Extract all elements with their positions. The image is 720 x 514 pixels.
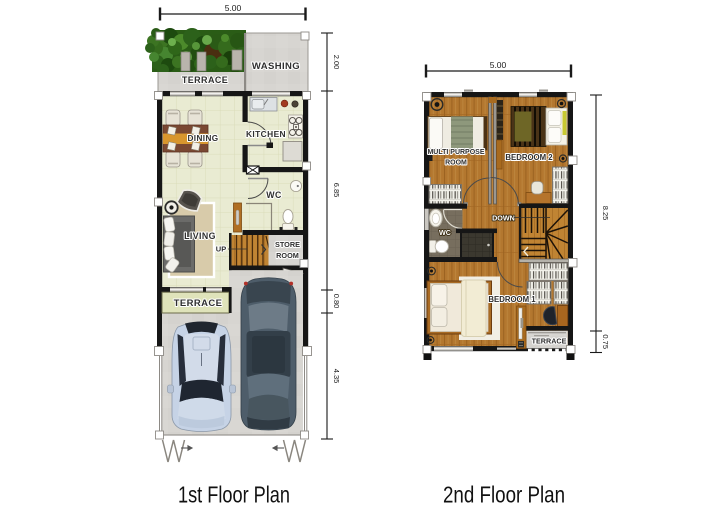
svg-text:WASHING: WASHING — [252, 61, 300, 72]
svg-text:UP: UP — [216, 245, 226, 254]
svg-text:0.75: 0.75 — [601, 334, 610, 349]
svg-text:TERRACE: TERRACE — [532, 337, 567, 346]
svg-text:DINING: DINING — [187, 134, 218, 143]
svg-text:ROOM: ROOM — [445, 160, 467, 167]
svg-text:WC: WC — [439, 228, 451, 237]
svg-text:TERRACE: TERRACE — [182, 75, 228, 85]
svg-text:8.25: 8.25 — [601, 206, 610, 221]
svg-text:WC: WC — [266, 190, 282, 200]
svg-text:6.85: 6.85 — [332, 183, 341, 198]
svg-text:DOWN: DOWN — [492, 214, 515, 223]
svg-text:BEDROOM 2: BEDROOM 2 — [505, 153, 553, 162]
svg-text:4.35: 4.35 — [332, 369, 341, 384]
svg-text:2.00: 2.00 — [332, 55, 341, 70]
svg-text:5.00: 5.00 — [225, 3, 242, 13]
svg-text:5.00: 5.00 — [490, 60, 507, 70]
svg-text:2nd Floor Plan: 2nd Floor Plan — [443, 482, 565, 508]
svg-text:0.80: 0.80 — [332, 294, 341, 309]
svg-text:TERRACE: TERRACE — [174, 298, 223, 309]
svg-text:ROOM: ROOM — [276, 251, 299, 260]
svg-text:1st Floor Plan: 1st Floor Plan — [178, 482, 290, 508]
svg-text:STORE: STORE — [275, 240, 300, 249]
svg-text:MULTI PURPOSE: MULTI PURPOSE — [427, 149, 484, 156]
svg-text:LIVING: LIVING — [184, 231, 216, 241]
svg-text:KITCHEN: KITCHEN — [246, 129, 286, 139]
svg-text:BEDROOM 1: BEDROOM 1 — [488, 295, 536, 304]
